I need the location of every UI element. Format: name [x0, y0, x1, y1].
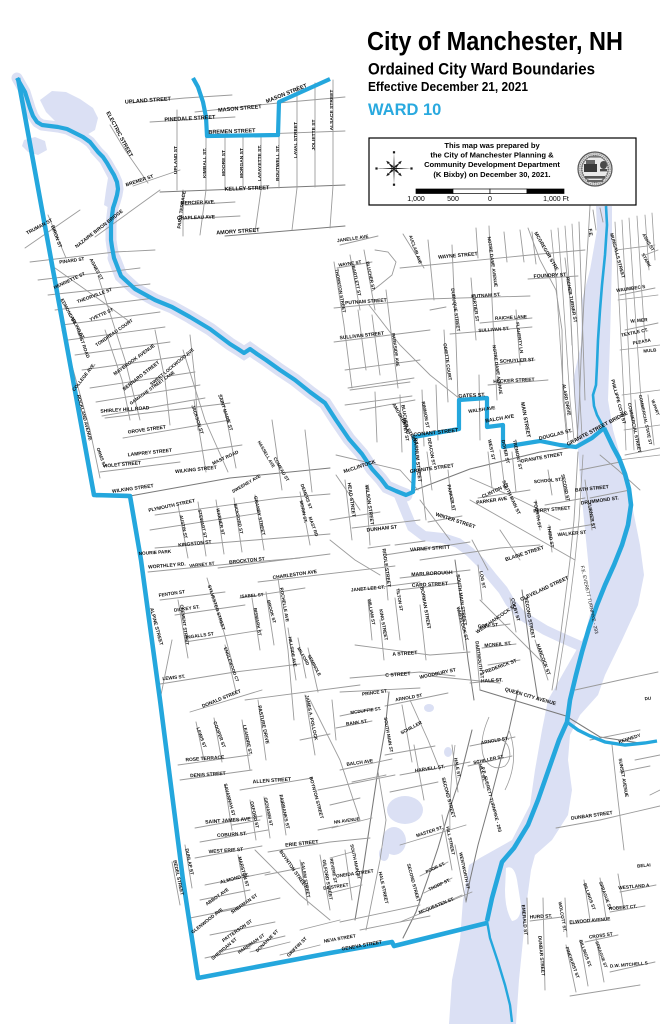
svg-text:HALE ST.: HALE ST.: [481, 677, 504, 684]
svg-text:UPLAND ST: UPLAND ST: [173, 146, 179, 174]
svg-text:MORGAN ST: MORGAN ST: [239, 148, 245, 178]
svg-text:WARD 10: WARD 10: [368, 101, 441, 119]
svg-text:LAVAL STREET: LAVAL STREET: [293, 122, 299, 158]
svg-text:MERCIER AVE.: MERCIER AVE.: [180, 199, 216, 206]
svg-text:ALSACE STREET: ALSACE STREET: [329, 90, 335, 131]
svg-text:Ordained City Ward Boundaries: Ordained City Ward Boundaries: [368, 61, 595, 79]
svg-text:MOORE ST: MOORE ST: [221, 150, 227, 176]
svg-text:DU: DU: [644, 696, 651, 702]
svg-text:KIMBALL ST.: KIMBALL ST.: [202, 147, 208, 178]
svg-text:BOUTWELL ST.: BOUTWELL ST.: [275, 144, 281, 181]
svg-text:HURD ST.: HURD ST.: [530, 913, 553, 920]
svg-text:(K Bixby) on December 30, 2021: (K Bixby) on December 30, 2021.: [433, 170, 550, 179]
svg-text:the City of Manchester Plannin: the City of Manchester Planning &: [430, 151, 554, 160]
svg-text:Community Development Departme: Community Development Department: [424, 160, 560, 169]
svg-text:JOLIETTE ST: JOLIETTE ST: [311, 120, 317, 151]
svg-text:1,000 Ft: 1,000 Ft: [543, 196, 569, 203]
svg-text:Effective December 21, 2021: Effective December 21, 2021: [368, 80, 528, 94]
svg-text:500: 500: [447, 196, 459, 203]
svg-text:LAFAYETTE ST.: LAFAYETTE ST.: [257, 144, 263, 181]
svg-text:This map was prepared by: This map was prepared by: [444, 141, 540, 150]
svg-text:0: 0: [488, 196, 492, 203]
svg-text:1,000: 1,000: [407, 196, 425, 203]
svg-text:F.E.: F.E.: [587, 228, 594, 238]
svg-text:City of Manchester, NH: City of Manchester, NH: [367, 28, 623, 56]
